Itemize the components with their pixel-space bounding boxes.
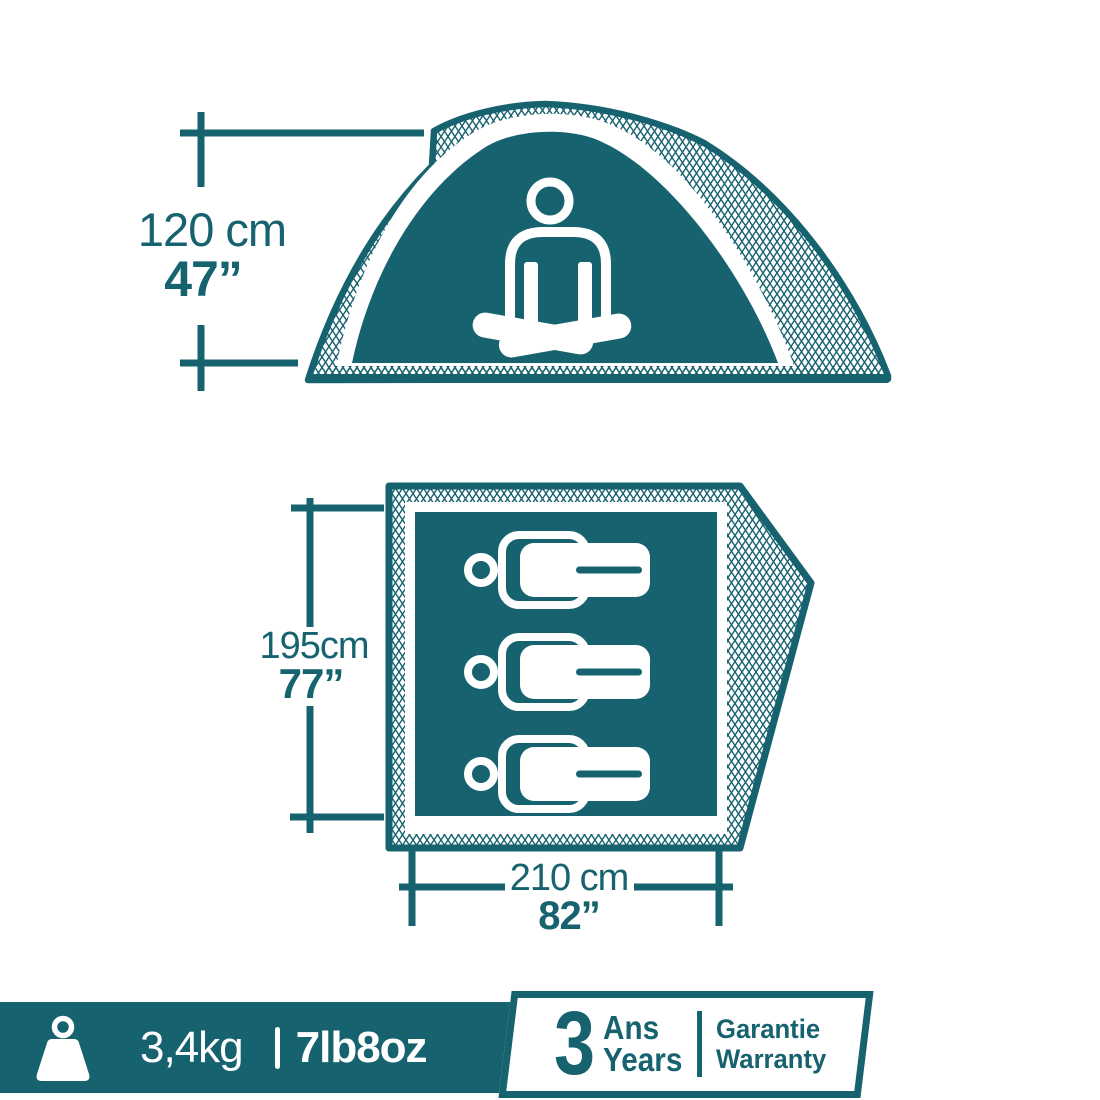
- floorplan-depth-imperial-label: 77”: [235, 663, 387, 705]
- weight-icon: [30, 1013, 96, 1083]
- warranty-badge-content: 3 Ans Years Garantie Warranty: [512, 1009, 832, 1079]
- warranty-label-fr: Garantie: [716, 1014, 826, 1044]
- tent-side-view: [306, 104, 889, 383]
- product-spec-diagram: 120 cm 47” 195cm 77” 210 cm 82” 3,4kg 7l…: [0, 0, 1100, 1100]
- warranty-divider-bar: [697, 1012, 702, 1078]
- warranty-unit-en: Years: [603, 1045, 682, 1077]
- warranty-badge: 3 Ans Years Garantie Warranty: [498, 991, 873, 1098]
- weight-separator-bar: [275, 1027, 280, 1069]
- warranty-labels: Garantie Warranty: [716, 1014, 826, 1074]
- warranty-duration: 3: [554, 1009, 593, 1079]
- floorplan-width-metric-label: 210 cm: [488, 859, 650, 897]
- warranty-unit-fr: Ans: [603, 1012, 682, 1044]
- warranty-duration-units: Ans Years: [603, 1012, 682, 1077]
- weight-imperial-value: 7lb8oz: [296, 1026, 427, 1070]
- tent-height-metric-label: 120 cm: [122, 206, 302, 253]
- weight-metric-value: 3,4kg: [140, 1026, 243, 1070]
- floor-plan: [389, 486, 811, 848]
- tent-height-imperial-label: 47”: [122, 254, 284, 304]
- tent-ground-line: [306, 374, 889, 383]
- floorplan-width-imperial-label: 82”: [488, 896, 650, 936]
- warranty-label-en: Warranty: [716, 1045, 826, 1075]
- person-lying-icons: [468, 535, 650, 809]
